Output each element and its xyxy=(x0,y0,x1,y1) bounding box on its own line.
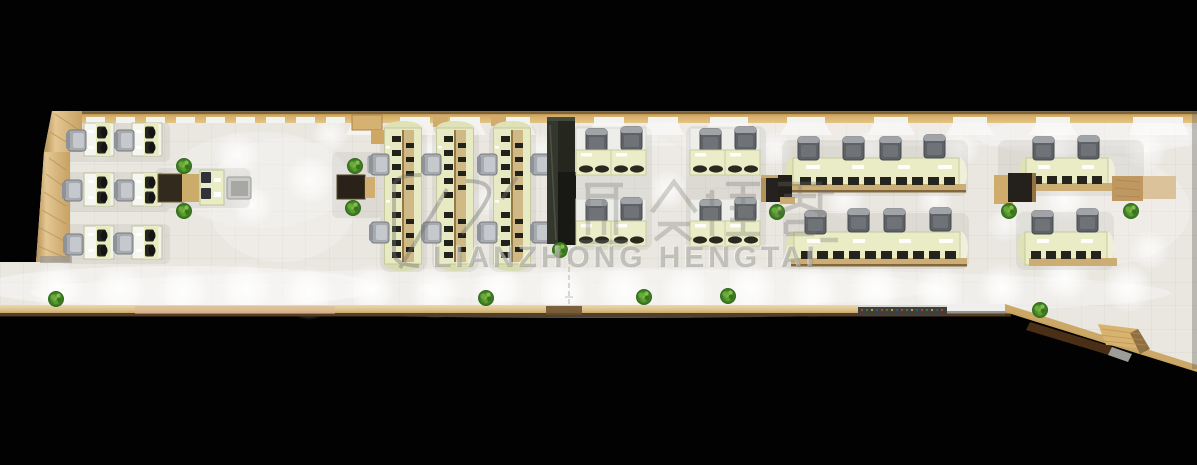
svg-text:LIANZHONG HENGTAI: LIANZHONG HENGTAI xyxy=(433,241,819,274)
